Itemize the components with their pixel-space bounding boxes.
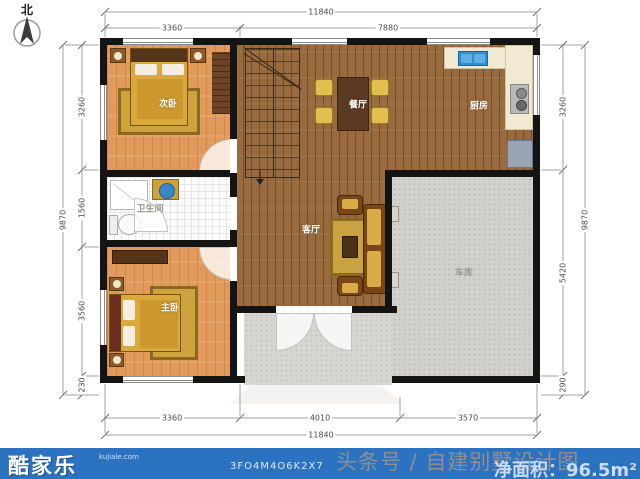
dining-chair — [371, 107, 389, 124]
kujiale-site: kujiale.com — [99, 453, 139, 461]
dim-right-seg1: 3260 — [559, 95, 568, 119]
net-area-text: 净面积：96.5m² — [494, 456, 637, 479]
burner — [516, 100, 527, 111]
sink-basin — [461, 54, 472, 63]
dim-left-total: 9870 — [59, 208, 68, 232]
dining-chair — [315, 107, 333, 124]
room-label-dining: 餐厅 — [349, 98, 367, 111]
pillow — [162, 64, 184, 75]
lamp — [194, 52, 202, 60]
window — [533, 55, 540, 115]
dim-left-seg2: 1560 — [78, 196, 87, 220]
floorplan-page: 北 — [0, 0, 640, 479]
sofa-cushion — [367, 251, 381, 287]
coffee-table — [342, 236, 358, 258]
headboard — [131, 49, 187, 62]
sink-basin — [474, 54, 485, 63]
dim-bottom-seg1: 3360 — [160, 414, 184, 423]
kitchen-sink — [458, 51, 488, 66]
nightstand — [190, 48, 206, 63]
window — [427, 38, 490, 45]
dim-right-seg2: 5420 — [559, 261, 568, 285]
wall-bathroom-bottom — [107, 240, 230, 247]
entry-steps — [230, 385, 402, 404]
window — [100, 290, 107, 345]
dim-bottom-total: 11840 — [306, 431, 335, 440]
lamp — [113, 280, 121, 288]
room-label-secondary-bedroom: 次卧 — [159, 97, 177, 110]
wardrobe — [212, 52, 230, 114]
compass-icon — [10, 13, 44, 49]
dining-chair — [315, 79, 333, 96]
washbasin-counter — [152, 179, 179, 200]
window — [100, 85, 107, 140]
wall-garage-top — [385, 170, 540, 177]
nightstand — [109, 277, 124, 291]
dim-top-total: 11840 — [306, 8, 335, 17]
nightstand — [110, 48, 126, 63]
door-gap — [230, 139, 237, 173]
dim-left-seg3: 3560 — [78, 299, 87, 323]
armchair — [337, 276, 363, 296]
dining-chair — [371, 79, 389, 96]
lamp — [113, 356, 121, 364]
window — [123, 38, 193, 45]
window — [123, 376, 193, 383]
room-label-garage: 车库 — [455, 266, 473, 279]
headboard — [110, 295, 121, 351]
pillow — [135, 64, 157, 75]
door-gap — [230, 197, 237, 230]
kujiale-logo: 酷家乐 — [8, 450, 77, 479]
pillow — [123, 300, 135, 320]
entry-door-gap — [276, 306, 352, 313]
lamp — [114, 52, 122, 60]
armchair-cushion — [342, 199, 358, 209]
toilet-tank — [109, 215, 118, 235]
refrigerator — [507, 140, 533, 168]
room-label-kitchen: 厨房 — [470, 99, 488, 112]
dim-right-seg3: 290 — [559, 375, 568, 394]
stairs-direction-arrow — [253, 170, 267, 186]
dim-bottom-seg3: 3570 — [456, 414, 480, 423]
wall-garage-left — [385, 170, 392, 313]
dim-top-right: 7880 — [376, 24, 400, 33]
kitchen-counter-side — [505, 45, 533, 130]
door-gap — [230, 247, 237, 281]
pillow — [123, 326, 135, 346]
armchair-cushion — [342, 283, 358, 293]
washbasin-sink — [159, 183, 175, 199]
nightstand — [109, 353, 124, 367]
staircase — [245, 48, 300, 178]
window — [292, 38, 347, 45]
dim-right-total: 9870 — [581, 208, 590, 232]
plan-code: 3FO4M4O6K2X7 — [230, 461, 324, 472]
dim-top-left: 3360 — [160, 24, 184, 33]
garage-floor — [392, 177, 540, 383]
sofa-cushion — [367, 209, 381, 245]
dresser — [112, 250, 168, 264]
dim-left-seg1: 3260 — [78, 95, 87, 119]
armchair — [337, 195, 363, 215]
room-label-bathroom: 卫生间 — [136, 202, 163, 215]
kitchen-counter-top — [444, 47, 507, 69]
room-label-master-bedroom: 主卧 — [161, 301, 179, 314]
burner — [516, 88, 527, 99]
room-label-living: 客厅 — [302, 223, 320, 236]
wall-bathroom-top — [107, 170, 230, 177]
stove — [510, 84, 529, 114]
dim-left-seg4: 230 — [78, 375, 87, 394]
dim-bottom-seg2: 4010 — [308, 414, 332, 423]
wall-garage-bottom — [392, 376, 540, 383]
bed — [130, 48, 188, 126]
